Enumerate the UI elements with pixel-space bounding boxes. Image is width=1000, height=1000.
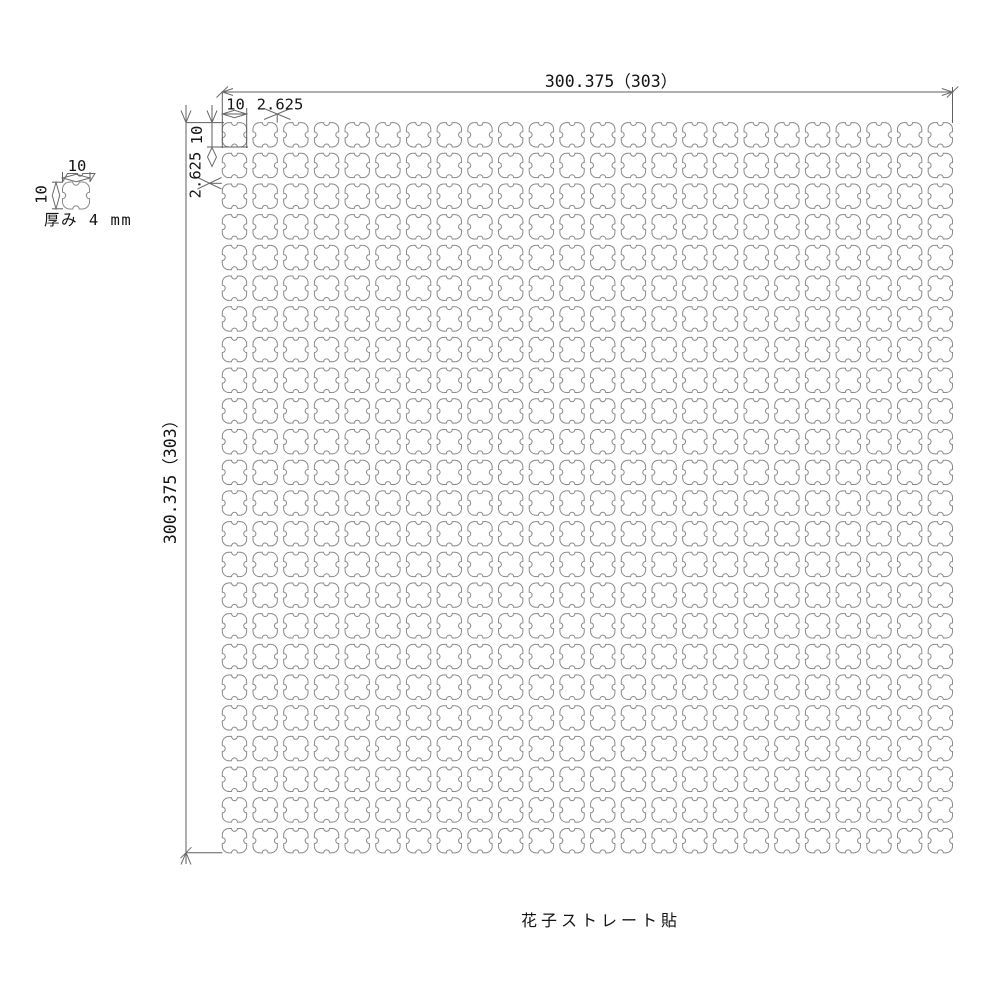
mosaic-tile <box>744 215 768 239</box>
mosaic-tile <box>468 798 492 822</box>
tile-width-label: 10 <box>226 96 245 114</box>
mosaic-tile <box>867 337 891 361</box>
mosaic-tile <box>560 337 584 361</box>
mosaic-tile <box>775 798 799 822</box>
mosaic-tile <box>499 522 523 546</box>
mosaic-tile <box>652 491 676 515</box>
mosaic-tile <box>652 706 676 730</box>
mosaic-tile <box>284 368 308 392</box>
mosaic-tile <box>437 215 461 239</box>
mosaic-tile <box>652 644 676 668</box>
mosaic-tile <box>897 460 921 484</box>
mosaic-tile <box>529 767 553 791</box>
mosaic-tile <box>805 245 829 269</box>
mosaic-tile <box>222 736 246 760</box>
mosaic-tile <box>345 614 369 638</box>
mosaic-tile <box>222 767 246 791</box>
mosaic-tile <box>406 644 430 668</box>
mosaic-tile <box>468 522 492 546</box>
thickness-note-label: 厚み 4 mm <box>44 211 132 229</box>
mosaic-tile <box>805 399 829 423</box>
mosaic-tile <box>867 522 891 546</box>
mosaic-tile <box>468 736 492 760</box>
mosaic-tile <box>897 706 921 730</box>
mosaic-tile <box>253 215 277 239</box>
mosaic-tile <box>836 245 860 269</box>
mosaic-tile <box>867 245 891 269</box>
mosaic-tile <box>437 491 461 515</box>
mosaic-tile <box>529 276 553 300</box>
mosaic-tile <box>928 430 952 454</box>
mosaic-tile <box>836 307 860 331</box>
mosaic-tile <box>314 706 338 730</box>
mosaic-tile <box>345 460 369 484</box>
mosaic-tile <box>652 368 676 392</box>
mosaic-tile <box>621 430 645 454</box>
mosaic-tile <box>376 337 400 361</box>
mosaic-tile <box>897 491 921 515</box>
mosaic-tile <box>376 215 400 239</box>
mosaic-tile <box>621 828 645 852</box>
mosaic-tile <box>529 675 553 699</box>
mosaic-tile <box>345 583 369 607</box>
mosaic-tile <box>499 736 523 760</box>
mosaic-tile <box>376 675 400 699</box>
mosaic-tile <box>253 153 277 177</box>
mosaic-tile <box>928 337 952 361</box>
mosaic-tile <box>591 522 615 546</box>
mosaic-tile <box>468 337 492 361</box>
mosaic-tile <box>253 522 277 546</box>
mosaic-tile <box>560 153 584 177</box>
mosaic-tile <box>744 767 768 791</box>
mosaic-tile <box>468 644 492 668</box>
mosaic-tile <box>560 430 584 454</box>
mosaic-tile <box>253 245 277 269</box>
mosaic-tile <box>928 123 952 147</box>
mosaic-tile <box>284 828 308 852</box>
mosaic-tile <box>222 368 246 392</box>
mosaic-tile <box>468 460 492 484</box>
mosaic-tile <box>345 706 369 730</box>
mosaic-tile <box>591 583 615 607</box>
mosaic-tile <box>805 706 829 730</box>
tile-detail-outline <box>63 182 90 209</box>
mosaic-tile <box>529 123 553 147</box>
mosaic-tile <box>222 307 246 331</box>
mosaic-tile <box>437 276 461 300</box>
mosaic-tile <box>744 552 768 576</box>
mosaic-tile <box>683 153 707 177</box>
mosaic-tile <box>222 706 246 730</box>
mosaic-tile <box>621 675 645 699</box>
mosaic-tile <box>836 583 860 607</box>
mosaic-tile <box>345 675 369 699</box>
mosaic-tile <box>713 644 737 668</box>
mosaic-tile <box>406 153 430 177</box>
drawing-sheet: 300.375（303） 300.375（303） 10 2.625 10 2.… <box>0 0 1000 1000</box>
mosaic-tile <box>928 798 952 822</box>
mosaic-tile <box>867 276 891 300</box>
mosaic-tile <box>775 767 799 791</box>
mosaic-tile <box>345 798 369 822</box>
mosaic-tile <box>744 583 768 607</box>
mosaic-tile <box>836 368 860 392</box>
mosaic-tile <box>499 675 523 699</box>
mosaic-tile <box>928 644 952 668</box>
mosaic-tile <box>468 491 492 515</box>
mosaic-tile <box>805 614 829 638</box>
mosaic-tile <box>805 430 829 454</box>
detail-tile <box>52 172 95 209</box>
mosaic-tile <box>345 644 369 668</box>
mosaic-tile <box>560 307 584 331</box>
mosaic-tile <box>928 491 952 515</box>
mosaic-tile <box>222 614 246 638</box>
mosaic-tile <box>713 123 737 147</box>
mosaic-tile <box>591 399 615 423</box>
mosaic-tile <box>284 491 308 515</box>
mosaic-tile <box>314 184 338 208</box>
mosaic-tile <box>867 675 891 699</box>
mosaic-tile <box>591 552 615 576</box>
mosaic-tile <box>345 276 369 300</box>
mosaic-tile <box>406 614 430 638</box>
mosaic-tile <box>652 215 676 239</box>
mosaic-tile <box>437 245 461 269</box>
mosaic-tile <box>406 399 430 423</box>
mosaic-tile <box>222 522 246 546</box>
mosaic-tile <box>468 153 492 177</box>
mosaic-tile <box>621 736 645 760</box>
mosaic-tile <box>560 706 584 730</box>
mosaic-tile <box>529 583 553 607</box>
mosaic-tile <box>406 736 430 760</box>
mosaic-tile <box>560 798 584 822</box>
mosaic-tile <box>253 644 277 668</box>
mosaic-tile <box>437 460 461 484</box>
mosaic-tile <box>775 245 799 269</box>
mosaic-tile <box>406 767 430 791</box>
mosaic-tile <box>928 245 952 269</box>
mosaic-tile <box>284 675 308 699</box>
mosaic-tile <box>928 583 952 607</box>
mosaic-tile <box>253 368 277 392</box>
mosaic-tile <box>652 736 676 760</box>
mosaic-tile <box>376 368 400 392</box>
mosaic-tile <box>222 675 246 699</box>
mosaic-tile <box>376 184 400 208</box>
mosaic-tile <box>529 430 553 454</box>
mosaic-tile <box>867 368 891 392</box>
mosaic-tile <box>253 337 277 361</box>
mosaic-tile <box>437 184 461 208</box>
mosaic-tile <box>867 644 891 668</box>
mosaic-tile <box>775 828 799 852</box>
mosaic-tile <box>591 430 615 454</box>
mosaic-tile <box>499 583 523 607</box>
diamond-arrows-icon <box>208 148 217 167</box>
mosaic-tile <box>253 491 277 515</box>
mosaic-tile <box>775 460 799 484</box>
mosaic-tile <box>222 245 246 269</box>
mosaic-tile <box>775 368 799 392</box>
mosaic-tile <box>499 644 523 668</box>
mosaic-tile <box>437 337 461 361</box>
mosaic-tile <box>836 491 860 515</box>
mosaic-tile <box>376 767 400 791</box>
mosaic-tile <box>744 399 768 423</box>
mosaic-tile <box>713 767 737 791</box>
mosaic-tile <box>560 399 584 423</box>
mosaic-tile <box>468 767 492 791</box>
mosaic-tile <box>253 736 277 760</box>
joint-width-label: 2.625 <box>257 96 304 114</box>
mosaic-tile <box>744 644 768 668</box>
tile-sheet-drawing: 300.375（303） 300.375（303） 10 2.625 10 2.… <box>0 0 1000 1000</box>
mosaic-tile <box>836 552 860 576</box>
mosaic-tile <box>683 736 707 760</box>
mosaic-tile <box>836 706 860 730</box>
mosaic-tile <box>437 552 461 576</box>
mosaic-tile <box>314 123 338 147</box>
mosaic-tile <box>621 552 645 576</box>
mosaic-tile <box>652 583 676 607</box>
mosaic-tile <box>253 583 277 607</box>
mosaic-tile <box>437 614 461 638</box>
mosaic-tile <box>406 522 430 546</box>
mosaic-tile <box>652 153 676 177</box>
mosaic-tile <box>406 276 430 300</box>
mosaic-tile <box>805 153 829 177</box>
mosaic-tile <box>713 215 737 239</box>
mosaic-tile <box>560 552 584 576</box>
mosaic-tile <box>805 828 829 852</box>
mosaic-tile <box>222 399 246 423</box>
mosaic-tile <box>621 614 645 638</box>
mosaic-tile <box>376 552 400 576</box>
mosaic-tile <box>805 675 829 699</box>
mosaic-tile <box>897 430 921 454</box>
mosaic-tile <box>621 368 645 392</box>
mosaic-tile <box>222 552 246 576</box>
mosaic-tile <box>621 583 645 607</box>
mosaic-tile <box>437 798 461 822</box>
mosaic-tile <box>805 368 829 392</box>
mosaic-tile <box>652 614 676 638</box>
mosaic-tile <box>621 767 645 791</box>
mosaic-tile <box>345 491 369 515</box>
mosaic-tile <box>621 706 645 730</box>
mosaic-tile <box>284 215 308 239</box>
mosaic-tile <box>928 828 952 852</box>
mosaic-tile <box>284 184 308 208</box>
mosaic-tile <box>683 307 707 331</box>
mosaic-tile <box>867 736 891 760</box>
mosaic-tile <box>345 828 369 852</box>
mosaic-tile <box>897 184 921 208</box>
mosaic-tile <box>284 276 308 300</box>
mosaic-tile <box>867 215 891 239</box>
mosaic-tile <box>222 215 246 239</box>
mosaic-tile <box>683 123 707 147</box>
mosaic-tile <box>744 798 768 822</box>
mosaic-tile <box>560 644 584 668</box>
mosaic-tile <box>591 153 615 177</box>
diamond-arrows-icon <box>52 182 59 209</box>
mosaic-tile <box>744 307 768 331</box>
mosaic-tile <box>775 491 799 515</box>
mosaic-tile <box>652 123 676 147</box>
mosaic-tile <box>744 491 768 515</box>
mosaic-tile <box>314 614 338 638</box>
mosaic-tile <box>713 675 737 699</box>
mosaic-tile <box>437 736 461 760</box>
mosaic-tile <box>897 276 921 300</box>
mosaic-tile <box>253 430 277 454</box>
mosaic-tile <box>713 736 737 760</box>
mosaic-tile <box>222 644 246 668</box>
mosaic-tile <box>775 307 799 331</box>
mosaic-tile <box>468 307 492 331</box>
mosaic-tile <box>529 798 553 822</box>
mosaic-tile <box>928 276 952 300</box>
mosaic-tile <box>621 215 645 239</box>
mosaic-tile <box>621 399 645 423</box>
mosaic-tile <box>284 614 308 638</box>
mosaic-tile <box>437 828 461 852</box>
mosaic-tile <box>253 706 277 730</box>
mosaic-tile <box>652 798 676 822</box>
mosaic-tile <box>591 123 615 147</box>
mosaic-tile <box>529 736 553 760</box>
mosaic-tile <box>775 184 799 208</box>
mosaic-tile <box>805 276 829 300</box>
mosaic-tile <box>376 460 400 484</box>
mosaic-tile <box>284 153 308 177</box>
mosaic-tile <box>744 337 768 361</box>
mosaic-tile <box>621 276 645 300</box>
mosaic-tile <box>652 184 676 208</box>
mosaic-tile <box>928 522 952 546</box>
mosaic-tile <box>529 644 553 668</box>
mosaic-tile <box>314 460 338 484</box>
mosaic-tile <box>284 736 308 760</box>
mosaic-tile <box>897 337 921 361</box>
mosaic-tile <box>253 307 277 331</box>
mosaic-tile <box>867 491 891 515</box>
mosaic-tile <box>345 215 369 239</box>
mosaic-tile <box>345 767 369 791</box>
mosaic-tile <box>314 675 338 699</box>
mosaic-tile <box>897 614 921 638</box>
mosaic-tile <box>406 552 430 576</box>
mosaic-tile <box>468 706 492 730</box>
mosaic-tile <box>652 276 676 300</box>
mosaic-tile <box>499 399 523 423</box>
mosaic-tile <box>253 123 277 147</box>
mosaic-tile <box>591 276 615 300</box>
mosaic-tile <box>376 276 400 300</box>
mosaic-tile <box>499 307 523 331</box>
mosaic-tile <box>499 337 523 361</box>
mosaic-tile <box>253 399 277 423</box>
mosaic-tile <box>775 644 799 668</box>
mosaic-tile <box>897 522 921 546</box>
mosaic-tile <box>744 736 768 760</box>
mosaic-tile <box>591 245 615 269</box>
mosaic-tile <box>406 430 430 454</box>
mosaic-tile <box>775 736 799 760</box>
mosaic-tile <box>529 552 553 576</box>
mosaic-tile <box>314 583 338 607</box>
mosaic-tile <box>468 399 492 423</box>
mosaic-tile <box>222 123 246 147</box>
mosaic-tile <box>345 245 369 269</box>
mosaic-tile <box>867 430 891 454</box>
mosaic-tile <box>836 644 860 668</box>
mosaic-tile <box>314 552 338 576</box>
mosaic-tile <box>928 215 952 239</box>
mosaic-tile <box>284 798 308 822</box>
mosaic-tile <box>529 245 553 269</box>
mosaic-tile <box>928 675 952 699</box>
mosaic-tile <box>529 215 553 239</box>
mosaic-tile <box>897 767 921 791</box>
mosaic-tile <box>345 337 369 361</box>
mosaic-tile <box>499 614 523 638</box>
mosaic-tile <box>683 644 707 668</box>
mosaic-tile <box>314 153 338 177</box>
mosaic-tile <box>744 153 768 177</box>
mosaic-tile <box>591 491 615 515</box>
mosaic-tile <box>284 430 308 454</box>
mosaic-tile <box>775 123 799 147</box>
mosaic-tile <box>897 123 921 147</box>
mosaic-tile <box>284 706 308 730</box>
mosaic-tile <box>499 123 523 147</box>
mosaic-tile <box>314 430 338 454</box>
mosaic-tile <box>284 767 308 791</box>
mosaic-tile <box>222 798 246 822</box>
mosaic-tile <box>805 583 829 607</box>
mosaic-tile <box>775 399 799 423</box>
mosaic-tile <box>560 215 584 239</box>
mosaic-tile <box>253 767 277 791</box>
mosaic-tile <box>683 828 707 852</box>
mosaic-tile <box>284 552 308 576</box>
detail-height-label: 10 <box>33 185 51 204</box>
mosaic-tile <box>591 798 615 822</box>
mosaic-tile <box>345 123 369 147</box>
mosaic-tile <box>897 736 921 760</box>
mosaic-tile <box>529 460 553 484</box>
mosaic-tile <box>529 337 553 361</box>
mosaic-tile <box>805 491 829 515</box>
mosaic-tile <box>621 245 645 269</box>
mosaic-tile <box>897 215 921 239</box>
mosaic-tile <box>805 736 829 760</box>
mosaic-tile <box>560 767 584 791</box>
mosaic-tile <box>468 215 492 239</box>
mosaic-tile <box>499 460 523 484</box>
mosaic-tile <box>805 215 829 239</box>
drawing-caption: 花子ストレート貼 <box>521 911 681 930</box>
mosaic-tile <box>468 828 492 852</box>
mosaic-tile <box>253 276 277 300</box>
mosaic-tile <box>805 307 829 331</box>
mosaic-tile <box>437 123 461 147</box>
